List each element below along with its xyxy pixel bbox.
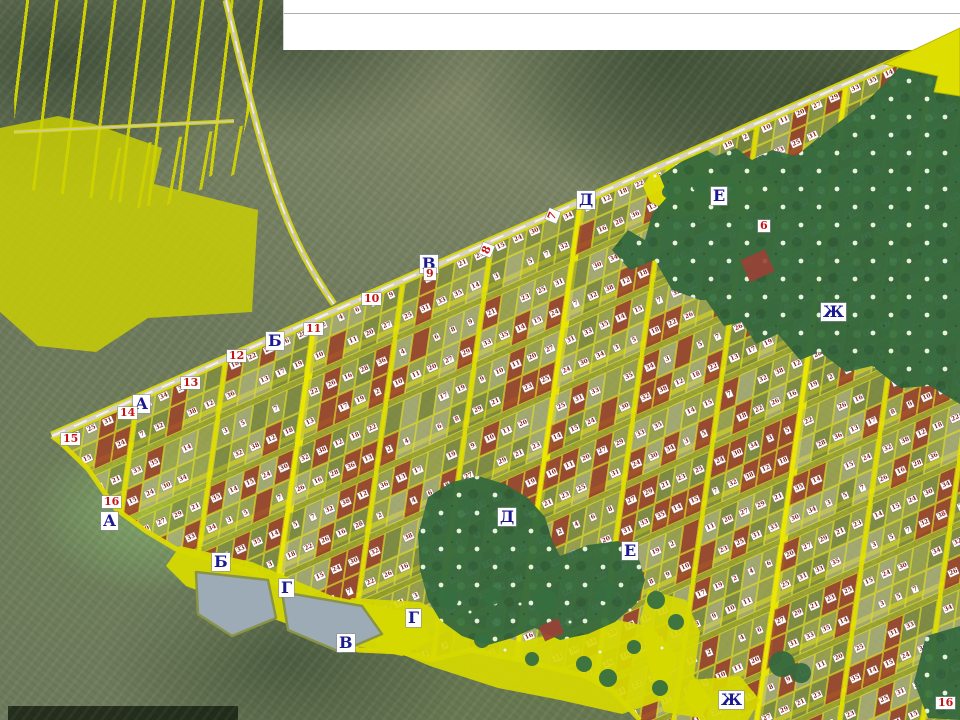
street-number-label: 15 [61,433,80,445]
street-number-label: 14 [118,407,137,419]
north-curved-road [226,0,334,304]
street-letter-label: Б [212,553,230,571]
street-number-label: 9 [424,268,436,280]
street-number-label: 12 [227,350,246,362]
street-letter-label: Е [622,542,638,560]
street-letter-label: Б [266,332,284,350]
forest-central [418,476,645,645]
street-number-label: 11 [304,323,323,335]
street-letter-label: Г [406,609,421,627]
street-number-label: 16 [102,496,121,508]
street-letter-label: В [337,634,355,652]
pond-west [196,572,276,636]
street-letter-label: А [101,512,118,530]
zones-overlay [0,0,960,720]
street-letter-label: Е [711,187,727,205]
street-letter-label: Ж [719,691,744,709]
street-number-label: 16 [936,697,955,709]
street-letter-label: Д [498,508,516,526]
street-letter-label: Г [279,579,294,597]
tree-clump [791,663,811,683]
street-letter-label: Д [577,191,595,209]
street-number-label: 13 [181,377,200,389]
street-number-label: 10 [362,293,381,305]
forest-northeast [612,46,960,404]
map-canvas[interactable]: 2123253133351415243034357323812182226162… [0,0,960,720]
street-letter-label: Ж [821,303,846,321]
street-number-label: 6 [758,220,770,232]
